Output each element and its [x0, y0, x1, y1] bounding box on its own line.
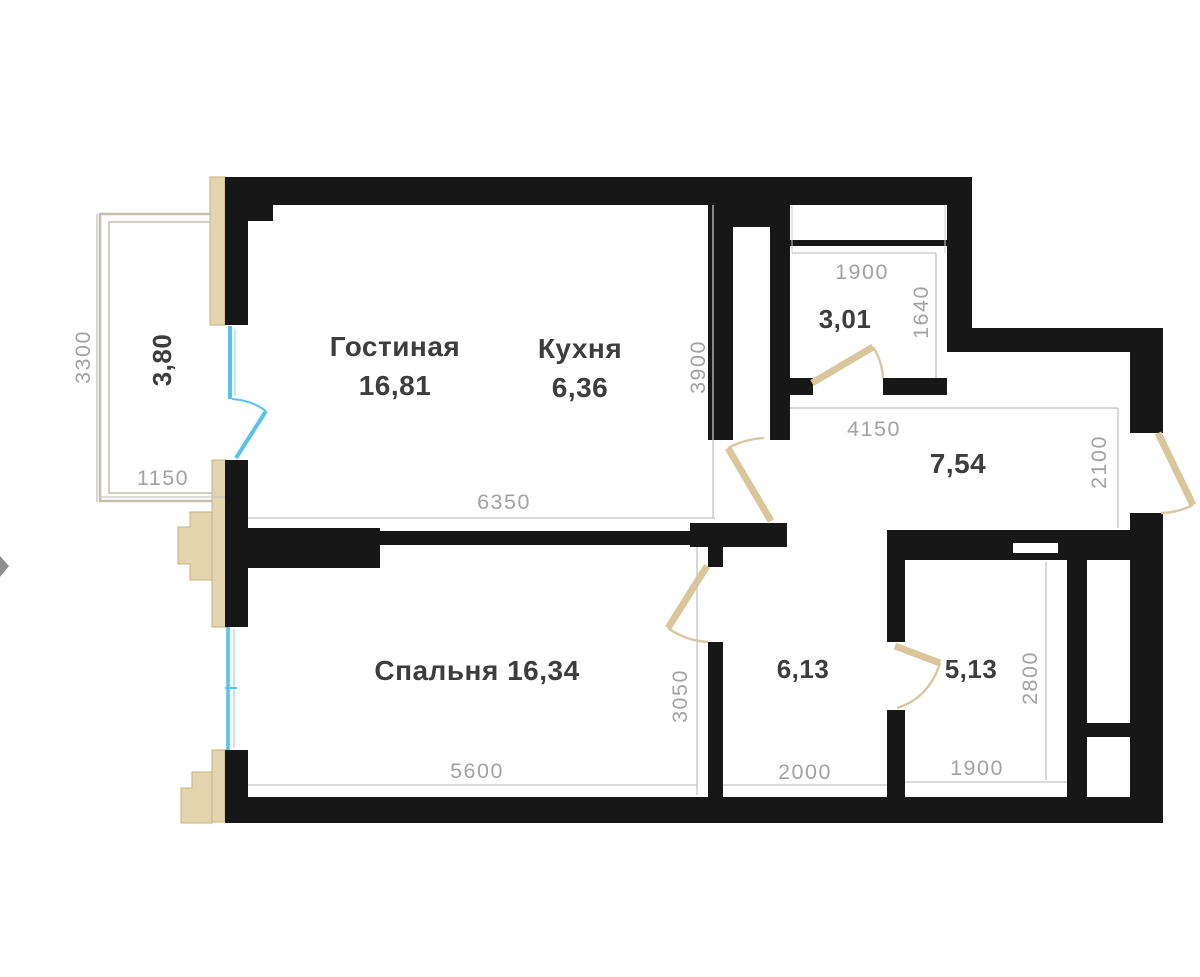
room-living-area: 16,81 — [359, 370, 432, 401]
wall-wardrobe-south-right — [883, 378, 947, 395]
facade-strip-top — [210, 177, 225, 325]
wardrobe-window-frame — [790, 240, 947, 246]
room-hallway-area: 7,54 — [930, 448, 987, 479]
wall-wardrobe-right — [947, 177, 972, 352]
bedroom-door-arc — [668, 628, 708, 642]
room-wardrobe-area: 3,01 — [819, 304, 872, 334]
wall-top — [225, 177, 972, 205]
room-balcony-area: 3,80 — [147, 334, 177, 387]
entrance-door-arc — [1161, 505, 1193, 513]
wall-bedroom-corridor — [708, 642, 723, 797]
wall-bathroom-left-upper — [887, 560, 905, 642]
room-labels: Гостиная 16,81 Кухня 6,36 3,01 7,54 Спал… — [147, 304, 997, 686]
room-bedroom-label: Спальня 16,34 — [374, 655, 579, 686]
dim-bathroom-height: 2800 — [1018, 651, 1042, 705]
wall-wardrobe-south-left — [770, 378, 813, 395]
facade-pilaster-bottom — [181, 772, 212, 823]
wall-bathroom-left-lower — [887, 710, 905, 797]
floor-plan: 3300 1150 6350 3900 1900 1640 4150 2100 … — [0, 0, 1200, 977]
wardrobe-door-leaf — [812, 347, 873, 383]
facade-pilaster-middle — [178, 512, 212, 580]
dim-wardrobe-width: 1900 — [835, 260, 889, 284]
facade-strip-bottom — [212, 750, 225, 822]
wall-entry-top — [972, 328, 1163, 352]
dim-hallway-width: 4150 — [847, 417, 901, 441]
kitchen-door-leaf — [728, 448, 771, 521]
dim-wardrobe-height: 1640 — [909, 285, 933, 339]
wall-living-bedroom-thin — [380, 531, 700, 545]
dim-balcony-height: 3300 — [71, 330, 95, 384]
wall-corridor-north — [690, 523, 787, 547]
balcony-door-leaf — [236, 411, 266, 458]
dim-bedroom-width: 5600 — [450, 759, 504, 783]
facade-strip-middle — [212, 460, 226, 627]
dim-living-width: 6350 — [477, 490, 531, 514]
dim-balcony-width: 1150 — [137, 466, 189, 490]
wall-cavity — [733, 227, 770, 440]
wall-niche-slot — [1013, 543, 1058, 553]
bathroom-door-leaf — [895, 646, 940, 663]
balcony-door-arc — [232, 399, 266, 411]
bedroom-door-leaf — [668, 566, 707, 628]
room-living-name: Гостиная — [330, 331, 461, 362]
entrance-door-leaf — [1158, 433, 1193, 505]
bathroom-door-arc — [897, 663, 940, 708]
dim-corridor-height: 3050 — [668, 669, 692, 723]
wall-shaft-left — [1067, 560, 1087, 797]
wall-left-upper — [225, 205, 248, 325]
wall-bottom — [225, 797, 1163, 823]
room-kitchen-area: 6,36 — [552, 372, 609, 403]
wall-right-above-door — [1130, 352, 1163, 433]
wall-hall-south — [887, 530, 1133, 560]
dim-hallway-height: 2100 — [1087, 435, 1111, 489]
wardrobe-door-arc — [873, 347, 883, 378]
dim-living-height: 3900 — [686, 340, 710, 394]
dim-bathroom-width: 1900 — [950, 756, 1004, 780]
floor-plan-screenshot: 3300 1150 6350 3900 1900 1640 4150 2100 … — [0, 0, 1200, 977]
room-bathroom-area: 5,13 — [945, 654, 998, 684]
wall-shaft-divider — [1087, 723, 1133, 737]
room-kitchen-name: Кухня — [538, 333, 622, 364]
room-corridor-area: 6,13 — [777, 654, 830, 684]
wall-bedroom-door-jamb — [708, 545, 723, 567]
wall-living-bedroom-thick — [227, 528, 380, 568]
wall-right-below-door — [1130, 513, 1163, 823]
dim-corridor-width: 2000 — [778, 760, 832, 784]
left-edge-mark — [0, 556, 9, 577]
